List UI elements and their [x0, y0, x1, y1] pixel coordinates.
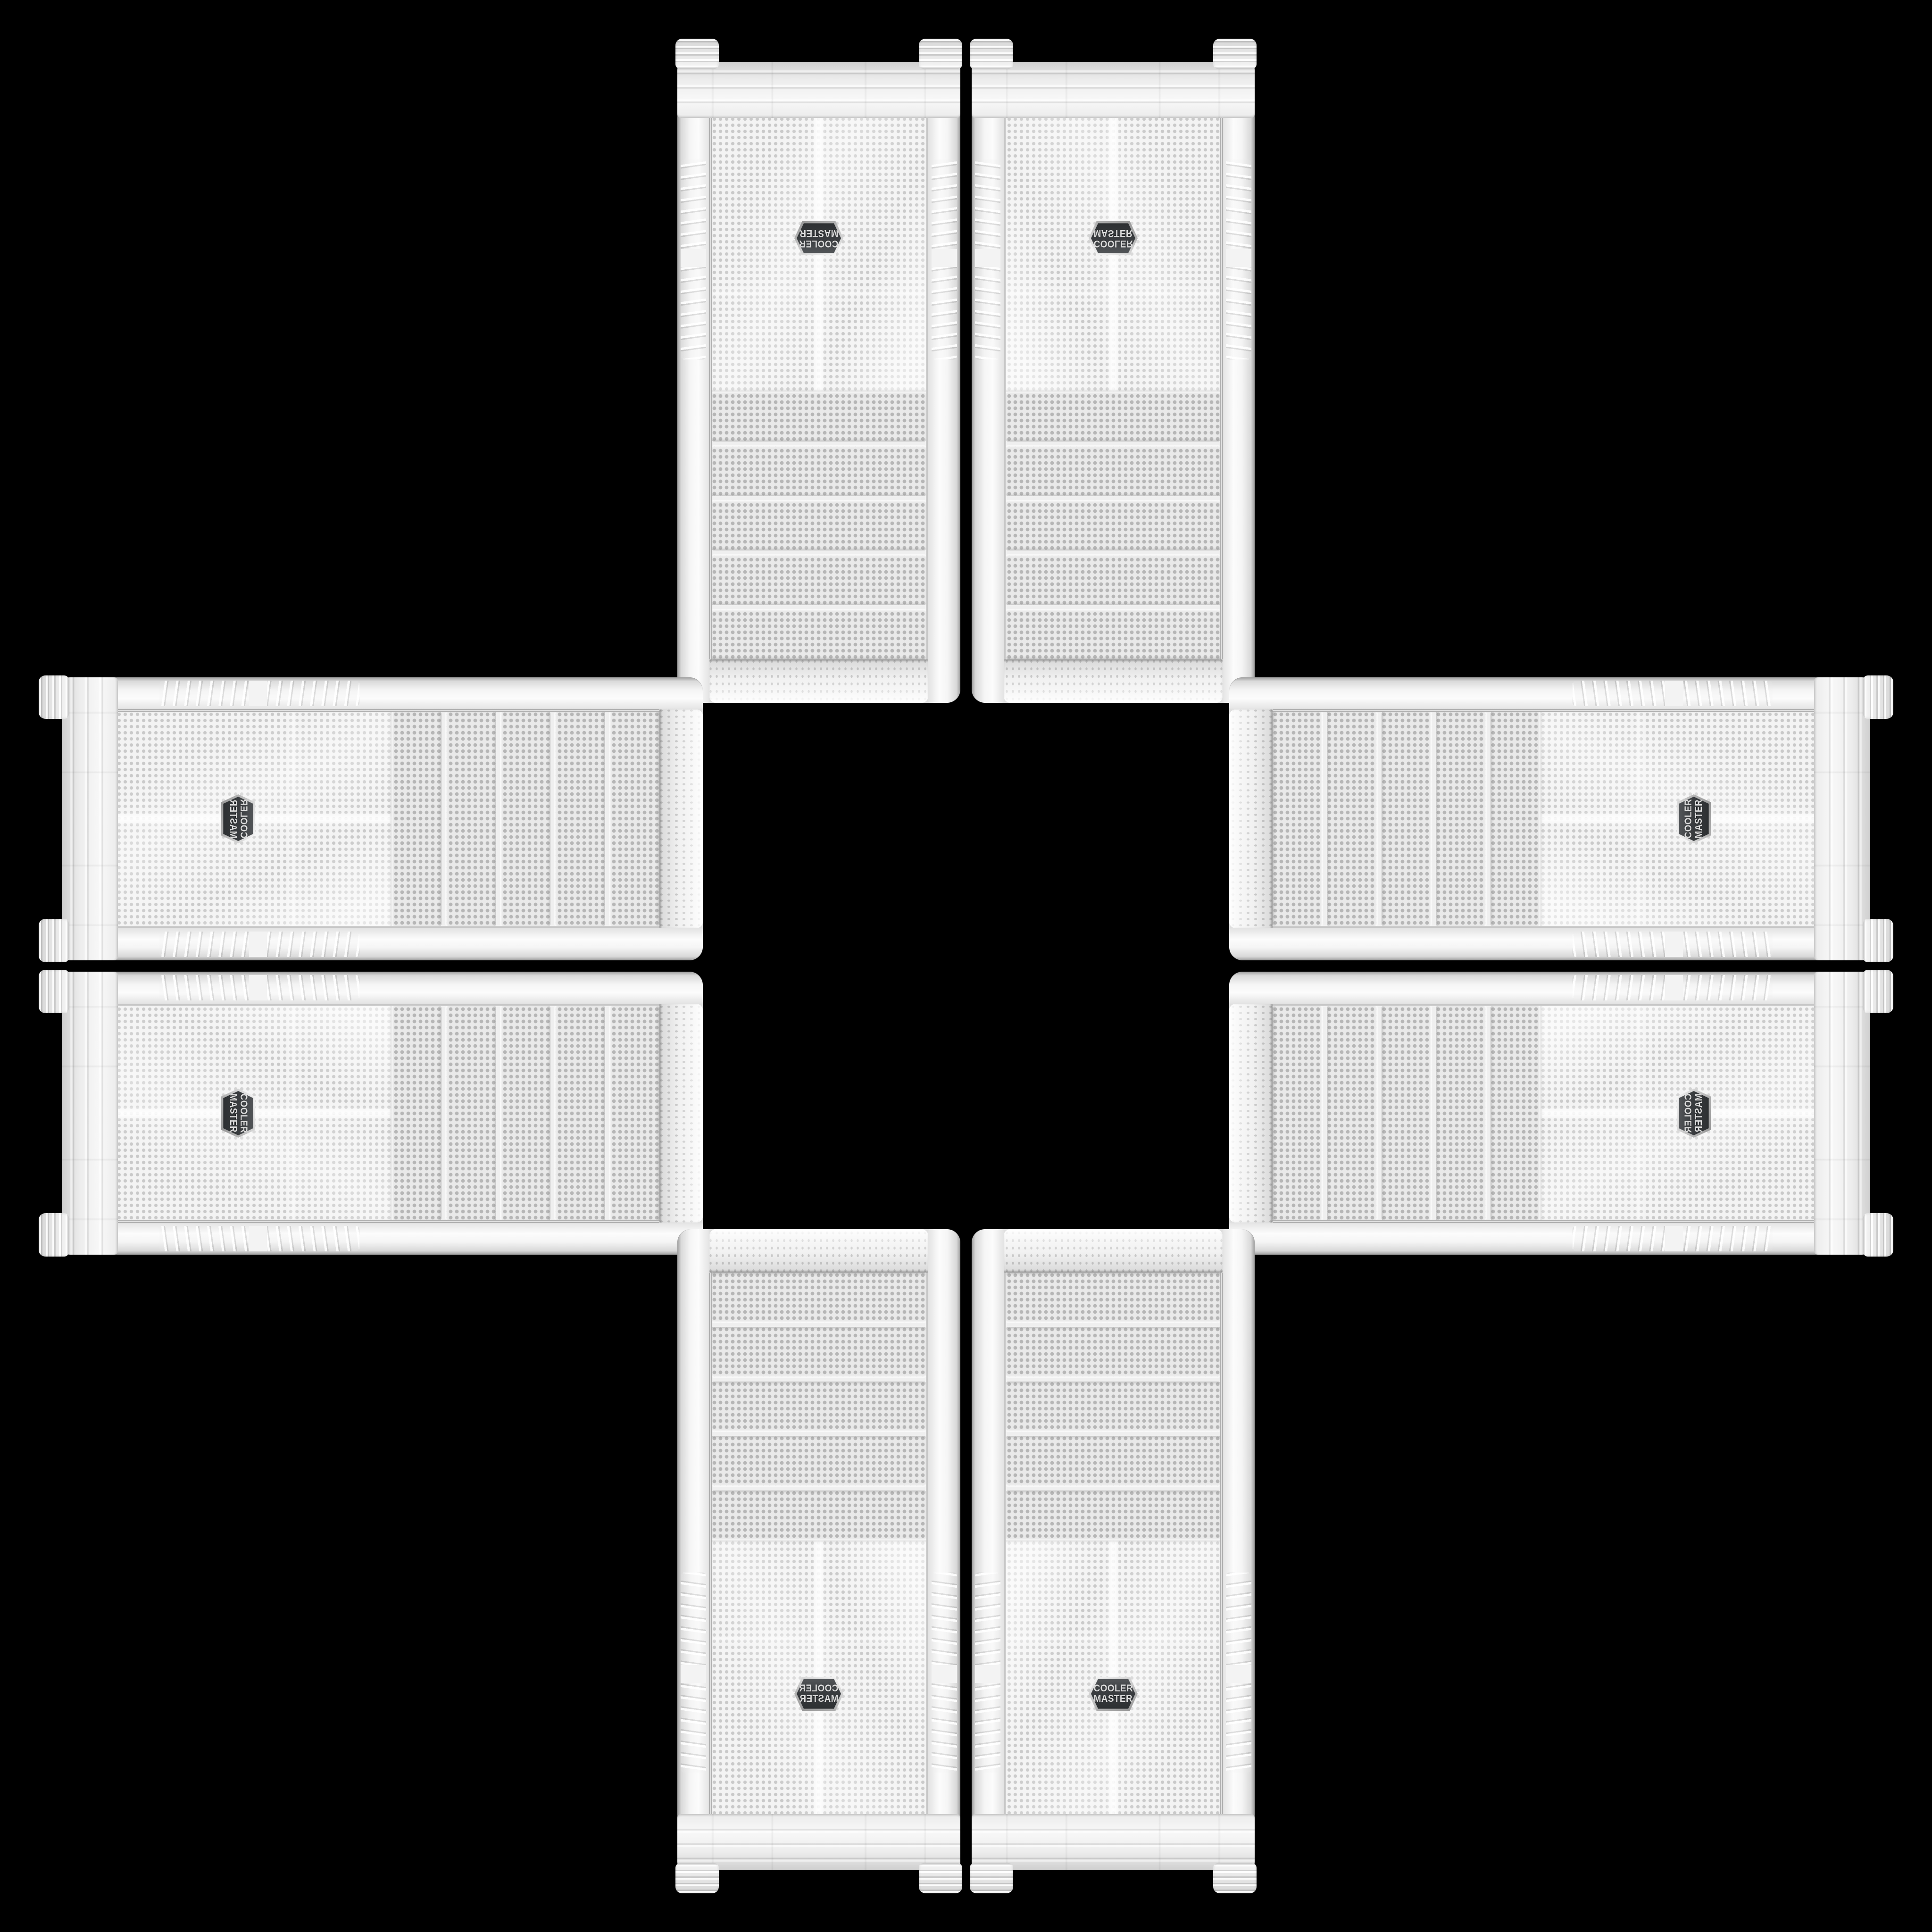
cooler-master-badge-face: COOLER MASTER	[221, 1091, 255, 1135]
drive-bay-covers	[391, 1006, 659, 1220]
chrome-trim-left-icon	[926, 118, 928, 659]
case-front-panel: COOLER MASTER	[1273, 709, 1814, 928]
drive-bay-covers	[1273, 1006, 1541, 1220]
cooler-master-badge-icon: COOLER MASTER	[794, 219, 843, 258]
case-foot-right	[675, 39, 719, 69]
drive-bay-cover	[712, 446, 926, 496]
drive-bay-cover	[712, 609, 926, 659]
case-foot-right	[1213, 39, 1257, 69]
cooler-master-badge-face: COOLER MASTER	[1677, 797, 1711, 841]
front-mesh-panel: COOLER MASTER	[1006, 118, 1220, 391]
cooler-master-badge-icon: COOLER MASTER	[1089, 219, 1138, 258]
case-foot-left	[1863, 919, 1893, 962]
pc-case: COOLER MASTER	[677, 1229, 960, 1893]
case-foot-left	[919, 39, 962, 69]
drive-bay-covers	[712, 391, 926, 659]
drive-bay-cover	[712, 1382, 926, 1432]
top-mesh-roll	[1004, 659, 1223, 703]
case-foot-left	[970, 1863, 1013, 1893]
case-foot-right	[1213, 1863, 1257, 1893]
drive-bay-covers	[1006, 391, 1220, 659]
front-mesh-panel: COOLER MASTER	[712, 118, 926, 391]
case-front-panel: COOLER MASTER	[118, 1004, 659, 1223]
case-foot-right	[675, 1863, 719, 1893]
case-side-rail-right	[677, 112, 709, 703]
drive-bay-cover	[1327, 1006, 1377, 1220]
drive-bay-cover	[1382, 712, 1432, 926]
case-side-rail-left	[112, 972, 703, 1004]
drive-bay-cover	[1273, 712, 1323, 926]
front-mesh-panel: COOLER MASTER	[118, 1006, 391, 1220]
drive-bay-cover	[609, 1006, 659, 1220]
pc-case: COOLER MASTER	[677, 39, 960, 703]
case-bottom-cap	[677, 1814, 960, 1870]
case-side-rail-left	[1229, 972, 1820, 1004]
case-side-rail-right	[1223, 112, 1255, 703]
case-side-rail-right	[677, 1229, 709, 1820]
rail-rib-texture	[159, 1226, 359, 1251]
case-foot-left	[1863, 970, 1893, 1013]
case-side-rail-left	[972, 1229, 1004, 1820]
drive-bay-cover	[1006, 446, 1220, 496]
drive-bay-cover	[500, 712, 550, 926]
case-side-rail-left	[928, 112, 960, 703]
cooler-master-badge-face: COOLER MASTER	[1091, 221, 1135, 255]
drive-bay-cover	[1006, 609, 1220, 659]
rail-rib-texture	[1573, 1226, 1773, 1251]
case-front-panel: COOLER MASTER	[1004, 118, 1223, 659]
top-mesh-roll	[709, 1229, 928, 1273]
badge-text-line2: MASTER	[228, 1094, 238, 1133]
rail-rib-texture	[975, 159, 1000, 359]
cooler-master-badge-icon: COOLER MASTER	[1674, 794, 1713, 843]
case-side-rail-left	[112, 928, 703, 960]
case-foot-left	[919, 1863, 962, 1893]
top-mesh-roll	[1229, 709, 1273, 928]
top-mesh-roll	[1229, 1004, 1273, 1223]
drive-bay-cover	[1006, 1382, 1220, 1432]
top-mesh-roll	[659, 1004, 703, 1223]
pc-case: COOLER MASTER	[972, 39, 1255, 703]
drive-bay-cover	[555, 1006, 605, 1220]
case-foot-right	[1863, 1213, 1893, 1257]
chrome-trim-left-icon	[1273, 926, 1814, 928]
front-mesh-panel: COOLER MASTER	[1006, 1541, 1220, 1814]
rail-rib-texture	[932, 159, 957, 359]
rail-rib-texture	[159, 681, 359, 706]
chrome-trim-right-icon	[118, 1220, 659, 1223]
case-side-rail-right	[112, 677, 703, 709]
drive-bay-cover	[555, 712, 605, 926]
drive-bay-cover	[1006, 1491, 1220, 1541]
case-side-rail-left	[928, 1229, 960, 1820]
drive-bay-cover	[1491, 712, 1541, 926]
drive-bay-cover	[1491, 1006, 1541, 1220]
chrome-trim-right-icon	[118, 709, 659, 712]
chrome-trim-left-icon	[118, 1004, 659, 1006]
badge-text-line2: MASTER	[799, 228, 839, 238]
front-mesh-panel: COOLER MASTER	[712, 1541, 926, 1814]
badge-text-line2: MASTER	[228, 799, 238, 839]
chrome-trim-left-icon	[926, 1273, 928, 1814]
chrome-trim-right-icon	[1273, 709, 1814, 712]
drive-bay-covers	[391, 712, 659, 926]
drive-bay-cover	[1436, 712, 1486, 926]
top-mesh-roll	[709, 659, 928, 703]
pc-case: COOLER MASTER	[1229, 972, 1893, 1255]
badge-text-line2: MASTER	[1694, 1094, 1704, 1133]
case-front-panel: COOLER MASTER	[709, 1273, 928, 1814]
case-bottom-cap	[972, 62, 1255, 118]
pc-case: COOLER MASTER	[39, 972, 703, 1255]
badge-text-line1: COOLER	[238, 1093, 249, 1133]
badge-text-line2: MASTER	[1094, 1694, 1133, 1704]
rail-rib-texture	[681, 1573, 706, 1773]
badge-text-line1: COOLER	[799, 238, 839, 249]
badge-text-line2: MASTER	[1694, 799, 1704, 839]
drive-bay-cover	[1006, 1273, 1220, 1323]
badge-text-line1: COOLER	[1093, 1683, 1133, 1694]
case-front-panel: COOLER MASTER	[709, 118, 928, 659]
chrome-trim-right-icon	[1273, 1220, 1814, 1223]
chrome-trim-left-icon	[1004, 1273, 1006, 1814]
front-mesh-panel: COOLER MASTER	[118, 712, 391, 926]
cooler-master-badge-icon: COOLER MASTER	[219, 1089, 258, 1138]
case-side-rail-right	[112, 1223, 703, 1255]
case-bottom-cap	[677, 62, 960, 118]
case-side-rail-left	[972, 112, 1004, 703]
case-bottom-cap	[62, 972, 118, 1255]
front-mesh-panel: COOLER MASTER	[1541, 1006, 1814, 1220]
case-foot-left	[39, 919, 69, 962]
top-mesh-roll	[659, 709, 703, 928]
chrome-trim-left-icon	[1273, 1004, 1814, 1006]
drive-bay-cover	[391, 712, 441, 926]
case-side-rail-left	[1229, 928, 1820, 960]
drive-bay-covers	[1006, 1273, 1220, 1541]
drive-bay-cover	[1327, 712, 1377, 926]
case-foot-left	[39, 970, 69, 1013]
rail-rib-texture	[159, 932, 359, 957]
drive-bay-cover	[500, 1006, 550, 1220]
chrome-trim-right-icon	[709, 1273, 712, 1814]
case-bottom-cap	[1814, 677, 1870, 960]
badge-text-line2: MASTER	[1094, 228, 1133, 238]
rail-rib-texture	[975, 1573, 1000, 1773]
case-front-panel: COOLER MASTER	[118, 709, 659, 928]
case-bottom-cap	[1814, 972, 1870, 1255]
drive-bay-cover	[1006, 555, 1220, 605]
case-side-rail-right	[1229, 1223, 1820, 1255]
cooler-master-badge-icon: COOLER MASTER	[219, 794, 258, 843]
drive-bay-cover	[391, 1006, 441, 1220]
drive-bay-cover	[712, 555, 926, 605]
drive-bay-cover	[609, 712, 659, 926]
front-mesh-panel: COOLER MASTER	[1541, 712, 1814, 926]
cooler-master-badge-face: COOLER MASTER	[1677, 1091, 1711, 1135]
drive-bay-cover	[1006, 391, 1220, 441]
chrome-trim-left-icon	[118, 926, 659, 928]
drive-bay-cover	[1006, 1436, 1220, 1486]
case-foot-right	[39, 675, 69, 719]
case-front-panel: COOLER MASTER	[1273, 1004, 1814, 1223]
chrome-trim-right-icon	[1220, 1273, 1223, 1814]
chrome-trim-right-icon	[1220, 118, 1223, 659]
case-front-panel: COOLER MASTER	[1004, 1273, 1223, 1814]
chrome-trim-right-icon	[709, 118, 712, 659]
cooler-master-badge-icon: COOLER MASTER	[1089, 1674, 1138, 1713]
rail-rib-texture	[1573, 932, 1773, 957]
drive-bay-cover	[712, 500, 926, 550]
cooler-master-badge-icon: COOLER MASTER	[1674, 1089, 1713, 1138]
badge-text-line1: COOLER	[1683, 799, 1694, 839]
cooler-master-badge-face: COOLER MASTER	[1091, 1677, 1135, 1711]
rail-rib-texture	[1573, 975, 1773, 1000]
top-mesh-roll	[1004, 1229, 1223, 1273]
drive-bay-cover	[446, 1006, 496, 1220]
cooler-master-badge-icon: COOLER MASTER	[794, 1674, 843, 1713]
case-foot-right	[39, 1213, 69, 1257]
drive-bay-cover	[1006, 500, 1220, 550]
rail-rib-texture	[932, 1573, 957, 1773]
badge-text-line1: COOLER	[238, 799, 249, 839]
scene: COOLER MASTER COOLER M	[0, 0, 1932, 1932]
pc-case: COOLER MASTER	[39, 677, 703, 960]
drive-bay-cover	[712, 1273, 926, 1323]
rail-rib-texture	[1573, 681, 1773, 706]
badge-text-line1: COOLER	[1683, 1093, 1694, 1133]
cooler-master-badge-face: COOLER MASTER	[797, 1677, 841, 1711]
cooler-master-badge-face: COOLER MASTER	[797, 221, 841, 255]
drive-bay-cover	[446, 712, 496, 926]
pc-case: COOLER MASTER	[972, 1229, 1255, 1893]
badge-text-line1: COOLER	[799, 1683, 839, 1694]
drive-bay-cover	[712, 1436, 926, 1486]
drive-bay-covers	[712, 1273, 926, 1541]
case-bottom-cap	[972, 1814, 1255, 1870]
drive-bay-covers	[1273, 712, 1541, 926]
chrome-trim-left-icon	[1004, 118, 1006, 659]
drive-bay-cover	[1382, 1006, 1432, 1220]
drive-bay-cover	[1273, 1006, 1323, 1220]
case-bottom-cap	[62, 677, 118, 960]
pc-case: COOLER MASTER	[1229, 677, 1893, 960]
badge-text-line1: COOLER	[1093, 238, 1133, 249]
drive-bay-cover	[1436, 1006, 1486, 1220]
cooler-master-badge-face: COOLER MASTER	[221, 797, 255, 841]
case-foot-left	[970, 39, 1013, 69]
drive-bay-cover	[712, 1491, 926, 1541]
drive-bay-cover	[1006, 1327, 1220, 1377]
rail-rib-texture	[1226, 159, 1251, 359]
rail-rib-texture	[1226, 1573, 1251, 1773]
drive-bay-cover	[712, 1327, 926, 1377]
case-side-rail-right	[1229, 677, 1820, 709]
case-side-rail-right	[1223, 1229, 1255, 1820]
rail-rib-texture	[159, 975, 359, 1000]
case-foot-right	[1863, 675, 1893, 719]
drive-bay-cover	[712, 391, 926, 441]
badge-text-line2: MASTER	[799, 1694, 839, 1704]
rail-rib-texture	[681, 159, 706, 359]
